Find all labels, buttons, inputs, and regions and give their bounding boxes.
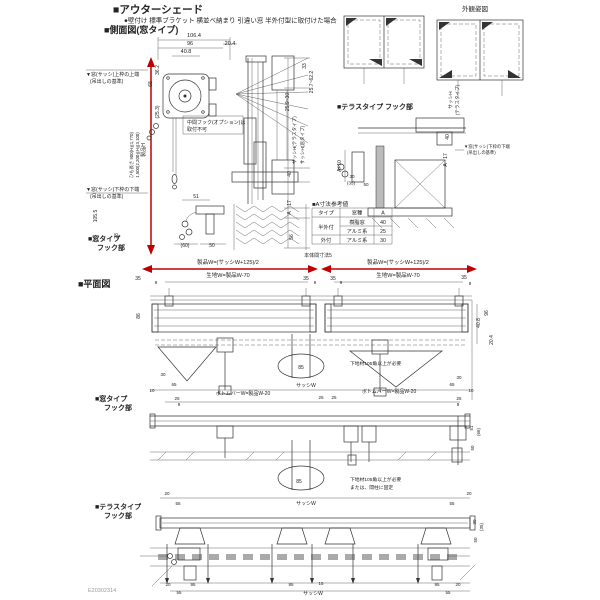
bottom-bar-w-left: ボトムバーW=製品W-20 bbox=[216, 390, 271, 397]
dim-label: 35 bbox=[461, 275, 467, 281]
exterior-view-label: 外観姿図 bbox=[462, 4, 488, 13]
cord-length-note1: ひも長さ 900(H≦1,770) bbox=[128, 132, 135, 178]
terrace-hook-plan-label-1: ■テラスタイプ bbox=[95, 502, 142, 511]
dim-total-depth: 106.4 bbox=[187, 33, 201, 39]
table-cell-jushimado: 樹脂窓 bbox=[349, 218, 365, 226]
sash-w-row1: サッシW bbox=[296, 383, 316, 389]
dim-20-4: 20.4 bbox=[225, 41, 236, 47]
dim-56: 56 bbox=[289, 234, 295, 240]
mid-hook-note2: 取付不可 bbox=[187, 126, 207, 133]
dim-label: 55 bbox=[445, 590, 451, 595]
page-title: ■アウターシェード bbox=[113, 4, 203, 16]
table-cell-40: 40 bbox=[380, 220, 386, 226]
dimension-labels-layer: 106.49620.440.836.268(25.3)▼窓(サッシ)上枠の上端(… bbox=[86, 33, 510, 597]
dim-51: 51 bbox=[193, 194, 199, 200]
page-subtitle: ●壁付け 標準ブラケット 横並べ納まり 引違い窓 半外付型に取付けた場合 bbox=[124, 16, 337, 25]
dim-label: 9 bbox=[178, 402, 181, 407]
dim-label: 30 bbox=[456, 375, 462, 380]
dim-t-30: 30 bbox=[349, 174, 355, 179]
plan-terrace-hook-row bbox=[140, 516, 475, 591]
base-note-row1: 下地材105角以上が必要 bbox=[350, 360, 401, 367]
dim-40-8b: 40.8 bbox=[476, 318, 482, 328]
ref-top-frame-note2: (吊出しの基準) bbox=[90, 78, 124, 85]
dim-label: 55 bbox=[176, 590, 182, 595]
dim-label: 35 bbox=[135, 276, 141, 282]
dim-sash-h-terrace: サッシH(テラスタイプ) bbox=[291, 116, 298, 164]
table-cell-sotozuke: 外付 bbox=[321, 236, 331, 244]
dim-t-35: (35) bbox=[347, 181, 356, 186]
a-dimension-table-text: ■A寸法参考値 タイプ 窓種 A 半外付 樹脂窓 40 アルミ系 25 外付 ア… bbox=[312, 200, 386, 244]
dim-label: 51 bbox=[469, 425, 474, 431]
dim-28: 28 bbox=[114, 233, 120, 239]
dim-label: 95 bbox=[190, 582, 196, 587]
table-cell-30: 30 bbox=[380, 238, 386, 244]
dim-50: 50 bbox=[209, 243, 215, 249]
dim-label: 15 bbox=[318, 581, 324, 586]
window-hook-plan-label-1: ■窓タイプ bbox=[95, 394, 128, 403]
window-hook-side-label-2: フック部 bbox=[97, 243, 125, 252]
dim-t-40: 40 bbox=[445, 134, 451, 140]
exterior-appearance-diagrams bbox=[344, 16, 523, 96]
sash-w-row2: サッシW bbox=[296, 501, 316, 507]
product-width-dimensions bbox=[142, 265, 477, 282]
dim-17: 17 bbox=[287, 200, 293, 206]
dim-33: 33 bbox=[302, 63, 308, 69]
dim-label: 9 bbox=[457, 402, 460, 407]
plan-view bbox=[140, 265, 477, 591]
dim-105-5: 105.5 bbox=[93, 210, 99, 223]
plan-product-w-right: 製品W=(サッシW+125)/2 bbox=[367, 258, 429, 266]
dim-label: 9 bbox=[340, 280, 343, 285]
detail-85-row1: 85 bbox=[298, 365, 304, 371]
dim-label: 95 bbox=[288, 582, 294, 587]
dim-label: 9 bbox=[469, 281, 472, 286]
plan-product-w-left: 製品W=(サッシW+125)/2 bbox=[197, 258, 259, 266]
dim-label: 50 bbox=[473, 537, 478, 543]
dim-t-a: A bbox=[443, 163, 449, 167]
cord-length-note2: 1,500(2,200≦H≦3,100) bbox=[135, 132, 140, 178]
dim-40-8: 40.8 bbox=[181, 49, 192, 55]
dim-label: 20 bbox=[466, 491, 472, 496]
technical-drawing: ■アウターシェード ●壁付け 標準ブラケット 横並べ納まり 引違い窓 半外付型に… bbox=[0, 0, 600, 600]
table-header-window: 窓種 bbox=[352, 209, 362, 217]
terrace-hook-side-label: ■テラスタイプ フック部 bbox=[337, 102, 413, 111]
dim-label: 30 bbox=[472, 519, 477, 525]
table-header-type: タイプ bbox=[318, 209, 334, 217]
dim-sash-h-terrace2a: サッシH bbox=[448, 91, 454, 108]
detail-85-row2: 85 bbox=[296, 479, 302, 485]
fabric-roll-zigzag bbox=[234, 204, 306, 250]
dim-label: 35 bbox=[303, 276, 309, 282]
table-cell-25: 25 bbox=[380, 229, 386, 235]
plan-fabric-w-right: 生地W=製品W-70 bbox=[376, 271, 419, 279]
dim-60: (60) bbox=[181, 243, 190, 249]
dim-40: 40 bbox=[287, 171, 293, 177]
dim-product-height: 製品H bbox=[140, 143, 147, 157]
plan-body-gap: 本体間寸法5 bbox=[304, 252, 332, 259]
dim-t-17: 17 bbox=[443, 153, 449, 159]
dim-20-4b: 20.4 bbox=[489, 335, 495, 345]
t-ref-note2: (吊出しの基準) bbox=[467, 149, 496, 156]
dim-25-9-30: 25.9~30 bbox=[285, 93, 291, 111]
dim-25-7-62-2: 25.7~62.2 bbox=[309, 71, 315, 94]
dim-86: 86 bbox=[136, 313, 142, 319]
dim-25-3: (25.3) bbox=[155, 105, 161, 118]
side-view-heading: ■側面図(窓タイプ) bbox=[104, 24, 178, 35]
ref-bottom-frame-note2: (吊出しの基準) bbox=[90, 193, 124, 200]
table-cell-alumi1: アルミ系 bbox=[347, 227, 368, 235]
dim-label: 50 bbox=[470, 445, 475, 451]
t-ref-note1: ▼窓(サッシ)下枠の下端 bbox=[464, 143, 510, 150]
dim-label: 25 bbox=[331, 395, 337, 400]
dim-sash-h-terrace2b: (テラスタイプ) bbox=[454, 84, 461, 115]
drawing-code: E20302314 bbox=[88, 588, 116, 594]
bottom-bar-hook-detail bbox=[174, 200, 226, 244]
plan-view-heading: ■平面図 bbox=[78, 279, 110, 289]
sash-w-row3: サッシW bbox=[303, 591, 323, 597]
dim-68: 68 bbox=[148, 81, 154, 87]
dim-label: (66) bbox=[476, 428, 481, 437]
dim-a-plus-10: A+10 bbox=[337, 160, 343, 172]
base-note-row2a: 下地材105角以上が必要 bbox=[350, 476, 401, 483]
table-cell-alumi2: アルミ系 bbox=[347, 236, 368, 244]
dim-36-2: 36.2 bbox=[155, 65, 161, 75]
plan-window-hook-row bbox=[150, 414, 470, 498]
dim-label: 20 bbox=[164, 491, 170, 496]
dim-label: 95 bbox=[434, 582, 440, 587]
dim-96b: 96 bbox=[484, 310, 490, 316]
dim-label: (35) bbox=[479, 523, 484, 532]
base-note-row2b: または、間柱に固定 bbox=[350, 484, 393, 491]
dim-t-50: 50 bbox=[363, 182, 369, 187]
dim-label: 10 bbox=[149, 388, 155, 393]
terrace-hook-plan-label-2: フック部 bbox=[104, 511, 132, 520]
dim-label: 25 bbox=[456, 396, 462, 401]
dim-label: 30 bbox=[160, 372, 166, 377]
dim-label: 10 bbox=[468, 388, 474, 393]
dim-sash-h-window: サッシH(窓タイプ) bbox=[299, 125, 306, 164]
ref-top-frame-note1: ▼窓(サッシ)上枠の上端 bbox=[86, 71, 139, 78]
plan-fabric-w-left: 生地W=製品W-70 bbox=[206, 271, 249, 279]
mid-hook-note1: 中間フック(オプション)は bbox=[187, 119, 245, 126]
ref-bottom-frame-note1: ▼窓(サッシ)下枠の下端 bbox=[86, 186, 139, 193]
dim-label: 65 bbox=[171, 382, 177, 387]
window-hook-plan-label-2: フック部 bbox=[104, 403, 132, 412]
dim-label: 55 bbox=[175, 501, 181, 506]
dim-label: 55 bbox=[449, 501, 455, 506]
dim-96: 96 bbox=[187, 41, 193, 47]
side-view-window-type bbox=[86, 37, 310, 255]
dim-label: 20 bbox=[165, 582, 171, 587]
dim-label: 35 bbox=[330, 276, 336, 282]
dim-label: 65 bbox=[449, 382, 455, 387]
table-title: ■A寸法参考値 bbox=[312, 200, 349, 208]
bottom-bar-w-right: ボトムバーW=製品W-20 bbox=[362, 388, 417, 395]
table-cell-hansotozuke: 半外付 bbox=[318, 223, 334, 231]
dim-label: 9 bbox=[155, 280, 158, 285]
roller-unit bbox=[163, 74, 216, 118]
dim-label: 25 bbox=[174, 396, 180, 401]
dim-label: 25 bbox=[318, 395, 324, 400]
dim-label: 9 bbox=[314, 280, 317, 285]
table-header-a: A bbox=[381, 211, 385, 217]
dim-label: 20 bbox=[455, 582, 461, 587]
